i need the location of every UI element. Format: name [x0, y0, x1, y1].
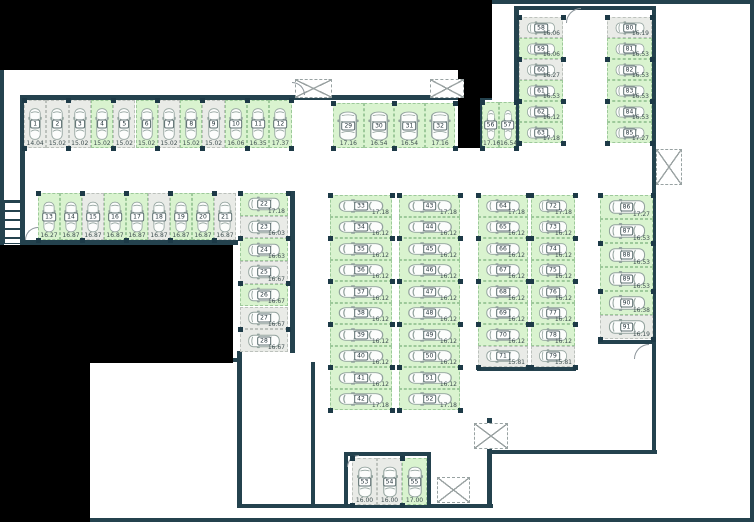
space-area-label: 16.12 — [372, 230, 389, 237]
column-icon — [650, 141, 655, 146]
column-icon — [200, 146, 205, 151]
space-number: 18 — [152, 212, 166, 221]
space-number: 14 — [64, 212, 78, 221]
space-number: 51 — [423, 373, 437, 382]
parking-space-75[interactable]: 7516.12 — [531, 260, 575, 282]
column-icon — [328, 279, 333, 284]
space-area-label: 16.12 — [555, 295, 572, 302]
parking-space-79[interactable]: 7915.81 — [531, 346, 575, 368]
parking-space-20[interactable]: 2016.87 — [192, 193, 214, 240]
parking-space-60[interactable]: 6016.27 — [519, 59, 563, 80]
column-icon — [651, 241, 656, 246]
column-icon — [529, 279, 534, 284]
column-icon — [517, 57, 522, 62]
parking-space-68[interactable]: 6816.12 — [478, 281, 528, 303]
space-area-label: 16.87 — [215, 232, 235, 239]
space-area-label: 16.53 — [632, 51, 649, 58]
column-icon — [245, 146, 250, 151]
wall-segment — [750, 0, 754, 522]
column-icon — [168, 238, 173, 243]
parking-space-49[interactable]: 4916.12 — [399, 324, 460, 346]
space-area-label: 16.12 — [372, 295, 389, 302]
space-number: 54 — [383, 477, 397, 486]
space-number: 37 — [354, 287, 368, 296]
parking-space-84[interactable]: 8416.53 — [607, 101, 652, 122]
column-icon — [111, 146, 116, 151]
space-number: 56 — [484, 121, 498, 130]
parking-space-51[interactable]: 5116.12 — [399, 367, 460, 389]
column-icon — [476, 279, 481, 284]
column-icon — [650, 57, 655, 62]
parking-space-5[interactable]: 515.02 — [113, 100, 135, 148]
parking-space-22[interactable]: 2217.18 — [240, 193, 288, 216]
space-number: 12 — [274, 120, 288, 129]
space-number: 33 — [354, 201, 368, 210]
column-icon — [651, 337, 656, 342]
space-number: 50 — [423, 352, 437, 361]
space-number: 3 — [75, 120, 85, 129]
space-area-label: 17.18 — [555, 209, 572, 216]
column-icon — [390, 365, 395, 370]
parking-space-76[interactable]: 7616.12 — [531, 281, 575, 303]
parking-space-38[interactable]: 3816.12 — [330, 303, 392, 325]
space-area-label: 17.00 — [403, 497, 426, 504]
parking-space-24[interactable]: 2416.63 — [240, 238, 288, 261]
column-icon — [392, 101, 397, 106]
column-icon — [397, 236, 402, 241]
space-area-label: 16.12 — [440, 381, 457, 388]
parking-space-72[interactable]: 7217.18 — [531, 195, 575, 217]
space-number: 57 — [501, 121, 515, 130]
space-area-label: 16.00 — [353, 497, 376, 504]
column-icon — [514, 146, 519, 151]
wall-segment — [514, 6, 656, 10]
parking-space-8[interactable]: 815.02 — [180, 100, 202, 148]
parking-space-59[interactable]: 5916.06 — [519, 38, 563, 59]
column-icon — [350, 503, 355, 508]
parking-space-37[interactable]: 3716.12 — [330, 281, 392, 303]
parking-space-31[interactable]: 3116.54 — [394, 103, 425, 148]
parking-space-64[interactable]: 6417.18 — [478, 195, 528, 217]
parking-space-34[interactable]: 3416.12 — [330, 217, 392, 239]
parking-space-82[interactable]: 8216.53 — [607, 59, 652, 80]
space-number: 49 — [423, 330, 437, 339]
parking-space-26[interactable]: 2616.67 — [240, 284, 288, 307]
space-area-label: 17.16 — [426, 140, 455, 147]
space-area-label: 17.27 — [632, 135, 649, 142]
column-icon — [397, 365, 402, 370]
column-icon — [561, 15, 566, 20]
parking-space-73[interactable]: 7316.12 — [531, 217, 575, 239]
column-icon — [458, 279, 463, 284]
parking-space-47[interactable]: 4716.12 — [399, 281, 460, 303]
parking-space-43[interactable]: 4317.18 — [399, 195, 460, 217]
parking-space-65[interactable]: 6516.12 — [478, 217, 528, 239]
space-number: 32 — [433, 121, 447, 130]
outside-area — [0, 0, 492, 70]
column-icon — [124, 191, 129, 196]
parking-space-14[interactable]: 1416.87 — [60, 193, 82, 240]
column-icon — [328, 236, 333, 241]
wall-segment — [311, 362, 315, 504]
space-area-label: 16.19 — [633, 331, 650, 338]
column-icon — [598, 193, 603, 198]
parking-space-41[interactable]: 4116.12 — [330, 367, 392, 389]
parking-space-19[interactable]: 1916.87 — [170, 193, 192, 240]
door-arc-icon — [634, 344, 649, 359]
space-number: 41 — [354, 373, 368, 382]
space-area-label: 16.12 — [555, 273, 572, 280]
column-icon — [328, 322, 333, 327]
space-area-label: 16.12 — [440, 295, 457, 302]
parking-space-61[interactable]: 6116.53 — [519, 80, 563, 101]
space-area-label: 16.53 — [633, 235, 650, 242]
space-area-label: 15.81 — [555, 359, 572, 366]
parking-space-13[interactable]: 1316.27 — [38, 193, 60, 240]
column-icon — [650, 99, 655, 104]
column-icon — [66, 146, 71, 151]
parking-space-9[interactable]: 915.02 — [202, 100, 224, 148]
parking-space-4[interactable]: 415.02 — [91, 100, 113, 148]
space-area-label: 16.87 — [149, 232, 169, 239]
parking-space-6[interactable]: 615.02 — [136, 100, 158, 148]
space-number: 17 — [130, 212, 144, 221]
space-number: 36 — [354, 266, 368, 275]
space-area-label: 16.87 — [127, 232, 147, 239]
parking-space-10[interactable]: 1016.06 — [225, 100, 247, 148]
column-icon — [155, 146, 160, 151]
space-area-label: 17.18 — [440, 209, 457, 216]
space-area-label: 16.53 — [632, 114, 649, 121]
space-number: 4 — [97, 120, 107, 129]
parking-space-35[interactable]: 3516.12 — [330, 238, 392, 260]
column-icon — [400, 456, 405, 461]
space-area-label: 16.87 — [193, 232, 213, 239]
space-area-label: 16.06 — [226, 140, 246, 147]
parking-space-88[interactable]: 8816.53 — [600, 243, 653, 267]
space-number: 91 — [620, 323, 634, 332]
parking-space-33[interactable]: 3317.18 — [330, 195, 392, 217]
space-number: 6 — [142, 120, 152, 129]
parking-floor-plan: 114.04215.02315.02415.02515.02615.02715.… — [0, 0, 754, 522]
space-number: 7 — [164, 120, 174, 129]
parking-space-71[interactable]: 7115.81 — [478, 346, 528, 368]
space-area-label: 16.12 — [372, 381, 389, 388]
space-number: 87 — [620, 227, 634, 236]
space-number: 2 — [53, 120, 63, 129]
column-icon — [598, 337, 603, 342]
space-number: 34 — [354, 223, 368, 232]
space-area-label: 15.02 — [70, 140, 90, 147]
space-area-label: 17.16 — [483, 140, 498, 147]
column-icon — [598, 241, 603, 246]
space-area-label: 16.12 — [555, 230, 572, 237]
space-area-label: 16.06 — [543, 51, 560, 58]
space-number: 35 — [354, 244, 368, 253]
column-icon — [286, 327, 291, 332]
column-icon — [328, 408, 333, 413]
space-area-label: 16.35 — [248, 140, 268, 147]
column-icon — [529, 322, 534, 327]
vent-shaft-icon — [437, 477, 470, 503]
parking-space-1[interactable]: 114.04 — [24, 100, 46, 148]
parking-space-52[interactable]: 5217.18 — [399, 389, 460, 411]
parking-space-67[interactable]: 6716.12 — [478, 260, 528, 282]
space-area-label: 16.12 — [440, 359, 457, 366]
parking-space-3[interactable]: 315.02 — [69, 100, 91, 148]
space-number: 10 — [229, 120, 243, 129]
parking-space-44[interactable]: 4416.12 — [399, 217, 460, 239]
parking-space-48[interactable]: 4816.12 — [399, 303, 460, 325]
column-icon — [651, 193, 656, 198]
space-number: 46 — [423, 266, 437, 275]
space-area-label: 16.53 — [633, 283, 650, 290]
space-area-label: 16.53 — [543, 93, 560, 100]
parking-space-28[interactable]: 2816.67 — [240, 329, 288, 352]
space-area-label: 15.02 — [203, 140, 223, 147]
column-icon — [517, 99, 522, 104]
parking-space-83[interactable]: 8316.53 — [607, 80, 652, 101]
space-number: 48 — [423, 309, 437, 318]
wall-segment — [487, 450, 657, 454]
space-area-label: 16.27 — [543, 72, 560, 79]
space-number: 86 — [620, 203, 634, 212]
space-area-label: 16.12 — [508, 252, 525, 259]
column-icon — [517, 141, 522, 146]
space-area-label: 16.12 — [508, 273, 525, 280]
space-area-label: 16.12 — [440, 338, 457, 345]
space-area-label: 15.02 — [181, 140, 201, 147]
column-icon — [400, 503, 405, 508]
column-icon — [458, 236, 463, 241]
space-number: 8 — [186, 120, 196, 129]
parking-space-45[interactable]: 4516.12 — [399, 238, 460, 260]
column-icon — [476, 236, 481, 241]
space-number: 15 — [86, 212, 100, 221]
column-icon — [605, 99, 610, 104]
column-icon — [245, 98, 250, 103]
parking-space-85[interactable]: 8517.27 — [607, 122, 652, 143]
column-icon — [238, 281, 243, 286]
column-icon — [80, 191, 85, 196]
parking-space-78[interactable]: 7816.12 — [531, 324, 575, 346]
parking-space-29[interactable]: 2917.16 — [333, 103, 364, 148]
space-area-label: 16.12 — [372, 273, 389, 280]
column-icon — [390, 236, 395, 241]
space-area-label: 16.87 — [171, 232, 191, 239]
space-number: 20 — [196, 212, 210, 221]
parking-space-39[interactable]: 3916.12 — [330, 324, 392, 346]
column-icon — [458, 365, 463, 370]
column-icon — [238, 327, 243, 332]
parking-space-77[interactable]: 7716.12 — [531, 303, 575, 325]
column-icon — [458, 193, 463, 198]
column-icon — [328, 193, 333, 198]
space-number: 11 — [251, 120, 265, 129]
space-area-label: 16.12 — [440, 230, 457, 237]
space-area-label: 16.27 — [39, 232, 59, 239]
space-area-label: 16.12 — [440, 273, 457, 280]
wall-segment — [290, 191, 295, 353]
column-icon — [573, 322, 578, 327]
parking-space-89[interactable]: 8916.53 — [600, 267, 653, 291]
space-area-label: 14.04 — [25, 140, 45, 147]
parking-space-12[interactable]: 1217.37 — [269, 100, 291, 148]
column-icon — [22, 146, 27, 151]
parking-space-40[interactable]: 4016.12 — [330, 346, 392, 368]
parking-space-80[interactable]: 8016.19 — [607, 17, 652, 38]
outside-area — [0, 362, 90, 522]
parking-space-46[interactable]: 4616.12 — [399, 260, 460, 282]
space-number: 90 — [620, 299, 634, 308]
space-area-label: 16.12 — [508, 230, 525, 237]
space-number: 13 — [42, 212, 56, 221]
parking-space-50[interactable]: 5016.12 — [399, 346, 460, 368]
wall-segment — [652, 343, 656, 454]
column-icon — [650, 15, 655, 20]
column-icon — [111, 98, 116, 103]
column-icon — [561, 57, 566, 62]
parking-space-69[interactable]: 6916.12 — [478, 303, 528, 325]
column-icon — [212, 238, 217, 243]
space-area-label: 15.02 — [114, 140, 134, 147]
column-icon — [36, 191, 41, 196]
space-area-label: 17.18 — [372, 402, 389, 409]
space-number: 30 — [372, 121, 386, 130]
space-area-label: 16.06 — [543, 30, 560, 37]
parking-space-62[interactable]: 6216.12 — [519, 101, 563, 122]
space-number: 53 — [358, 477, 372, 486]
space-area-label: 16.12 — [372, 359, 389, 366]
parking-space-57[interactable]: 5716.54 — [499, 102, 516, 148]
column-icon — [480, 100, 485, 105]
space-area-label: 15.02 — [159, 140, 179, 147]
parking-space-15[interactable]: 1516.87 — [82, 193, 104, 240]
space-area-label: 16.19 — [632, 30, 649, 37]
parking-space-56[interactable]: 5617.16 — [482, 102, 499, 148]
column-icon — [390, 279, 395, 284]
space-area-label: 16.12 — [543, 114, 560, 121]
column-icon — [397, 279, 402, 284]
parking-space-58[interactable]: 5816.06 — [519, 17, 563, 38]
parking-space-66[interactable]: 6616.12 — [478, 238, 528, 260]
column-icon — [168, 191, 173, 196]
space-area-label: 15.02 — [92, 140, 112, 147]
space-area-label: 16.12 — [372, 316, 389, 323]
parking-space-91[interactable]: 9116.19 — [600, 315, 653, 339]
parking-space-17[interactable]: 1716.87 — [126, 193, 148, 240]
column-icon — [390, 193, 395, 198]
space-area-label: 16.38 — [633, 307, 650, 314]
door-arc-icon — [566, 8, 581, 23]
column-icon — [289, 146, 294, 151]
space-number: 40 — [354, 352, 368, 361]
space-number: 31 — [403, 121, 417, 130]
stairs-icon — [4, 200, 22, 244]
space-number: 88 — [620, 251, 634, 260]
space-area-label: 17.18 — [440, 402, 457, 409]
parking-space-25[interactable]: 2516.67 — [240, 261, 288, 284]
space-area-label: 15.81 — [508, 359, 525, 366]
parking-space-55[interactable]: 5517.00 — [402, 458, 427, 505]
space-area-label: 17.18 — [268, 208, 285, 215]
space-number: 29 — [341, 121, 355, 130]
parking-space-21[interactable]: 2116.87 — [214, 193, 236, 240]
column-icon — [561, 99, 566, 104]
parking-space-32[interactable]: 3217.16 — [425, 103, 456, 148]
space-area-label: 17.18 — [508, 209, 525, 216]
parking-space-18[interactable]: 1816.87 — [148, 193, 170, 240]
column-icon — [155, 98, 160, 103]
column-icon — [605, 141, 610, 146]
space-area-label: 16.53 — [632, 93, 649, 100]
parking-space-23[interactable]: 2316.03 — [240, 216, 288, 239]
space-area-label: 16.12 — [372, 252, 389, 259]
parking-space-16[interactable]: 1616.87 — [104, 193, 126, 240]
column-icon — [476, 322, 481, 327]
space-area-label: 16.12 — [508, 338, 525, 345]
column-icon — [517, 15, 522, 20]
column-icon — [286, 236, 291, 241]
column-icon — [453, 146, 458, 151]
space-area-label: 16.12 — [440, 316, 457, 323]
parking-space-30[interactable]: 3016.54 — [364, 103, 395, 148]
parking-space-54[interactable]: 5416.00 — [377, 458, 402, 505]
vent-shaft-icon — [656, 149, 682, 185]
parking-space-90[interactable]: 9016.38 — [600, 291, 653, 315]
space-number: 5 — [119, 120, 129, 129]
parking-space-7[interactable]: 715.02 — [158, 100, 180, 148]
space-area-label: 16.03 — [268, 230, 285, 237]
space-area-label: 16.12 — [555, 252, 572, 259]
column-icon — [238, 191, 243, 196]
parking-space-63[interactable]: 6317.18 — [519, 122, 563, 143]
space-area-label: 16.12 — [372, 338, 389, 345]
column-icon — [328, 365, 333, 370]
parking-space-86[interactable]: 8617.27 — [600, 195, 653, 219]
column-icon — [397, 322, 402, 327]
column-icon — [212, 191, 217, 196]
column-icon — [561, 141, 566, 146]
vent-shaft-icon — [430, 79, 464, 98]
space-number: 45 — [423, 244, 437, 253]
parking-space-2[interactable]: 215.02 — [46, 100, 68, 148]
column-icon — [529, 193, 534, 198]
column-icon — [476, 365, 481, 370]
column-icon — [286, 191, 291, 196]
parking-space-70[interactable]: 7016.12 — [478, 324, 528, 346]
space-area-label: 16.53 — [633, 259, 650, 266]
space-area-label: 16.87 — [83, 232, 103, 239]
parking-space-36[interactable]: 3616.12 — [330, 260, 392, 282]
column-icon — [397, 408, 402, 413]
space-area-label: 16.00 — [378, 497, 401, 504]
space-number: 1 — [30, 120, 40, 129]
column-icon — [397, 193, 402, 198]
parking-space-27[interactable]: 2716.67 — [240, 307, 288, 330]
parking-space-74[interactable]: 7416.12 — [531, 238, 575, 260]
wall-segment — [237, 351, 242, 508]
column-icon — [573, 279, 578, 284]
column-icon — [124, 238, 129, 243]
parking-space-87[interactable]: 8716.53 — [600, 219, 653, 243]
column-icon — [331, 146, 336, 151]
space-area-label: 16.54 — [365, 140, 394, 147]
parking-space-11[interactable]: 1116.35 — [247, 100, 269, 148]
column-icon — [200, 98, 205, 103]
parking-space-81[interactable]: 8116.53 — [607, 38, 652, 59]
parking-space-42[interactable]: 4217.18 — [330, 389, 392, 411]
